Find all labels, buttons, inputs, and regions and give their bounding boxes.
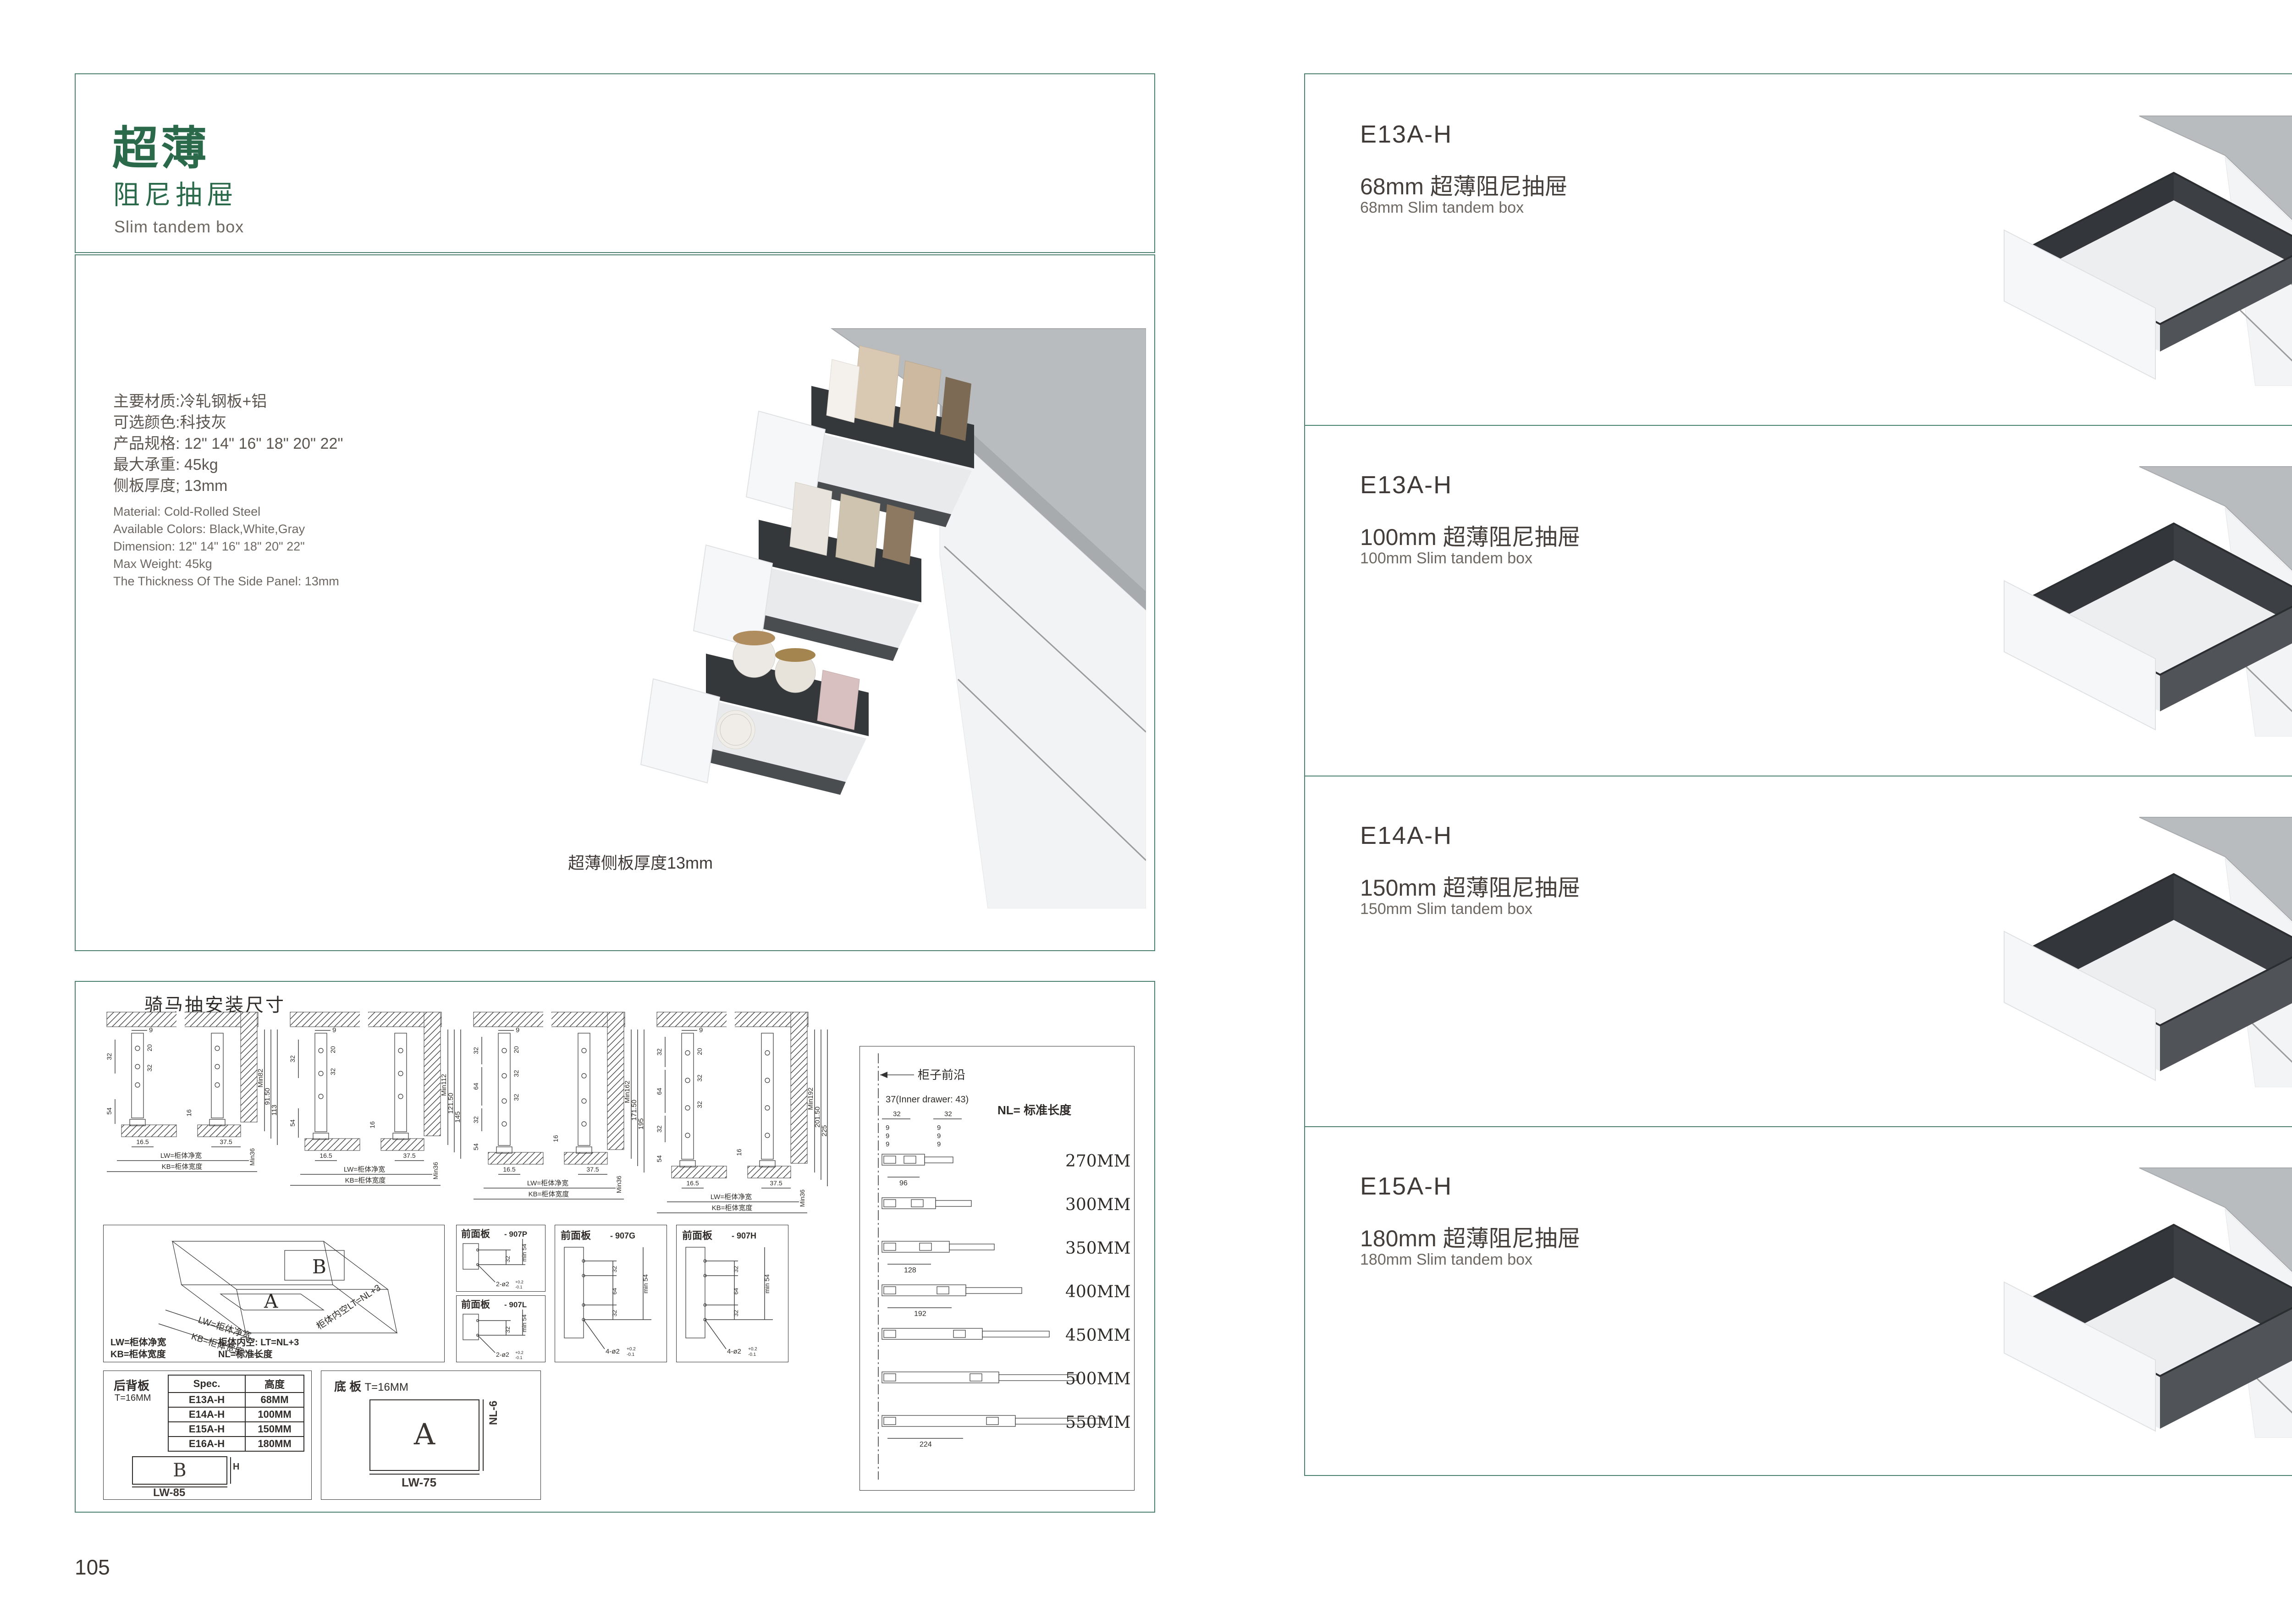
svg-text:Min36: Min36	[799, 1189, 806, 1207]
hero-photo-illustration	[539, 317, 1146, 908]
svg-text:32: 32	[472, 1047, 479, 1054]
svg-text:121.50: 121.50	[447, 1093, 455, 1114]
back-panel-label: 后背板	[114, 1376, 149, 1393]
svg-text:-0.1: -0.1	[748, 1352, 756, 1357]
svg-text:64: 64	[656, 1088, 663, 1095]
table-row: E14A-H100MM	[168, 1407, 304, 1422]
svg-text:54: 54	[472, 1143, 479, 1151]
bottom-panel-rect: A	[369, 1399, 479, 1471]
svg-text:Min112: Min112	[440, 1074, 448, 1096]
product-title-en: 180mm Slim tandem box	[1360, 1251, 1532, 1269]
svg-text:9: 9	[699, 1026, 703, 1034]
table-row: E15A-H150MM	[168, 1422, 304, 1437]
svg-text:KB=柜体宽度: KB=柜体宽度	[712, 1204, 753, 1212]
cross-section-2: 9 20 32 32 54 16 Min112 121.50 145 16.5 …	[286, 1009, 465, 1190]
svg-text:4-ø2: 4-ø2	[727, 1348, 741, 1355]
spec-en-line: Material: Cold-Rolled Steel	[113, 503, 339, 520]
svg-text:32: 32	[656, 1048, 663, 1056]
product-row-4: E15A-H 180mm 超薄阻尼抽屉 180mm Slim tandem bo…	[1305, 1126, 2292, 1477]
svg-text:+0.2: +0.2	[515, 1350, 523, 1355]
svg-text:16: 16	[369, 1121, 376, 1129]
photo-caption: 超薄侧板厚度13mm	[568, 850, 713, 874]
svg-text:32: 32	[944, 1110, 952, 1118]
svg-text:128: 128	[904, 1266, 916, 1274]
table-row: E16A-H180MM	[168, 1437, 304, 1451]
spec-en-line: Dimension: 12" 14" 16" 18" 20" 22"	[113, 538, 339, 555]
cross-section-3: 9 20 32 32 32 64 32 54 16 Min162 171.50 …	[470, 1009, 649, 1204]
svg-text:54: 54	[289, 1119, 296, 1127]
front-panel-907l: 前面板 - 907L 32 min 54 2-ø2 +0.2 -0.1	[456, 1295, 545, 1362]
svg-text:270MM: 270MM	[1065, 1152, 1130, 1171]
product-title-en: 68mm Slim tandem box	[1360, 199, 1524, 217]
panel-letter-b: B	[312, 1255, 326, 1278]
svg-text:Min36: Min36	[432, 1162, 439, 1179]
cross-section-4: 9 20 32 32 32 64 32 54 16 Min192 201.50 …	[653, 1009, 832, 1218]
svg-text:16: 16	[185, 1109, 193, 1117]
product-photo-2	[1908, 464, 2292, 737]
svg-text:+0.2: +0.2	[748, 1347, 757, 1352]
bottom-panel-diagram: 底 板 T=16MM A NL-6 LW-75	[321, 1371, 541, 1500]
svg-text:37.5: 37.5	[586, 1166, 599, 1173]
panel-code: - 907L	[504, 1300, 527, 1309]
svg-text:16: 16	[735, 1149, 743, 1156]
svg-text:225: 225	[821, 1125, 828, 1136]
spec-table-header: 高度	[245, 1375, 304, 1393]
svg-text:32: 32	[611, 1266, 618, 1272]
svg-text:4-ø2: 4-ø2	[606, 1348, 620, 1355]
svg-text:37.5: 37.5	[220, 1138, 232, 1145]
svg-text:500MM: 500MM	[1065, 1370, 1130, 1388]
svg-text:32: 32	[656, 1125, 663, 1133]
svg-text:32: 32	[472, 1116, 479, 1123]
product-code: E14A-H	[1360, 821, 1452, 850]
specs-cn: 主要材质:冷轧钢板+铝 可选颜色:科技灰 产品规格: 12" 14" 16" 1…	[113, 391, 343, 496]
svg-text:9: 9	[149, 1026, 153, 1034]
rail-spacing-dims: 96 128 192 224	[887, 1177, 963, 1448]
svg-text:LW=柜体净宽: LW=柜体净宽	[344, 1166, 385, 1173]
svg-text:54: 54	[656, 1155, 663, 1162]
spec-en-line: Max Weight: 45kg	[113, 555, 339, 573]
svg-text:64: 64	[611, 1288, 618, 1294]
svg-text:32: 32	[512, 1094, 520, 1101]
product-title-cn: 150mm 超薄阻尼抽屉	[1360, 870, 1581, 903]
svg-text:32: 32	[504, 1256, 511, 1262]
svg-text:9: 9	[886, 1132, 889, 1140]
page-subtitle-cn: 阻尼抽屉	[113, 173, 238, 212]
hero-photo	[539, 317, 1146, 908]
svg-text:LW=柜体净宽: LW=柜体净宽	[711, 1193, 752, 1201]
product-photo-1	[1908, 113, 2292, 386]
svg-text:32: 32	[893, 1110, 901, 1118]
nl-label: NL= 标准长度	[997, 1103, 1071, 1117]
panel-title: 前面板	[682, 1230, 713, 1241]
svg-text:-0.1: -0.1	[515, 1355, 523, 1360]
dim-lw75: LW-75	[402, 1475, 436, 1490]
svg-text:91.50: 91.50	[264, 1088, 271, 1105]
product-title-cn: 100mm 超薄阻尼抽屉	[1360, 519, 1581, 552]
svg-text:LW=柜体净宽: LW=柜体净宽	[160, 1152, 202, 1160]
svg-text:20: 20	[329, 1046, 336, 1053]
svg-text:+0.2: +0.2	[515, 1280, 523, 1284]
svg-text:96: 96	[899, 1179, 908, 1187]
svg-text:9: 9	[886, 1140, 889, 1148]
svg-text:9: 9	[886, 1124, 889, 1132]
product-title-en: 150mm Slim tandem box	[1360, 900, 1532, 918]
svg-text:37.5: 37.5	[770, 1179, 782, 1187]
panel-code: - 907P	[504, 1230, 527, 1239]
cross-section-1: 9 20 32 32 54 16 Min82 91.50 113 16.5 37…	[103, 1009, 282, 1177]
svg-text:350MM: 350MM	[1065, 1239, 1130, 1258]
svg-text:201.50: 201.50	[814, 1107, 821, 1128]
svg-text:32: 32	[611, 1310, 618, 1316]
front-panel-907p: 前面板 - 907P 32 min 54 2-ø2 +0.2 -0.1	[456, 1225, 545, 1292]
svg-text:113: 113	[270, 1105, 278, 1116]
svg-text:9: 9	[937, 1140, 941, 1148]
spec-cn-line: 最大承重: 45kg	[113, 454, 343, 475]
page-subtitle-en: Slim tandem box	[114, 217, 244, 237]
svg-text:450MM: 450MM	[1065, 1326, 1130, 1345]
panel-title: 前面板	[561, 1230, 591, 1241]
svg-text:9: 9	[937, 1124, 941, 1132]
bottom-panel-label: 底 板	[334, 1380, 361, 1393]
svg-text:9: 9	[937, 1132, 941, 1140]
svg-text:min 54: min 54	[521, 1314, 528, 1332]
svg-text:9: 9	[332, 1026, 336, 1034]
spec-table: Spec. 高度 E13A-H68MM E14A-H100MM E15A-H15…	[168, 1375, 304, 1452]
spec-cn-line: 主要材质:冷轧钢板+铝	[113, 391, 343, 412]
svg-text:37.5: 37.5	[403, 1152, 415, 1159]
svg-text:32: 32	[733, 1266, 739, 1272]
dim-nl6: NL-6	[487, 1401, 500, 1425]
back-panel-thickness: T=16MM	[115, 1393, 151, 1404]
dim-lw85: LW-85	[153, 1486, 185, 1499]
top-dim-cluster: 32 9 9 9 32 9 9 9	[882, 1110, 962, 1148]
back-panel-rect: B	[132, 1456, 227, 1485]
product-photo-4	[1908, 1165, 2292, 1438]
svg-text:145: 145	[454, 1111, 462, 1123]
svg-text:-0.1: -0.1	[627, 1352, 635, 1357]
svg-text:NL=标准长度: NL=标准长度	[218, 1349, 273, 1360]
left-header-box: 超薄 阻尼抽屉 Slim tandem box	[75, 73, 1155, 253]
svg-text:KB=柜体宽度: KB=柜体宽度	[110, 1349, 166, 1360]
box3d-diagram: B A LW=柜体净宽 KB=柜体宽度 柜体内空LT=NL+3 LW=柜体净宽 …	[103, 1225, 445, 1362]
svg-text:300MM: 300MM	[1065, 1195, 1130, 1214]
spec-en-line: Available Colors: Black,White,Gray	[113, 520, 339, 538]
svg-text:224: 224	[920, 1441, 932, 1448]
table-row: E13A-H68MM	[168, 1393, 304, 1407]
spec-table-header: Spec.	[168, 1375, 245, 1393]
svg-text:-0.1: -0.1	[515, 1285, 523, 1289]
svg-text:20: 20	[512, 1046, 520, 1053]
svg-text:54: 54	[105, 1107, 113, 1115]
product-code: E15A-H	[1360, 1172, 1452, 1200]
page-title: 超薄	[112, 111, 209, 177]
panel-title: 前面板	[461, 1299, 490, 1310]
left-tech-box: 骑马抽安装尺寸 9 20 32 32 54 16	[75, 981, 1155, 1513]
svg-text:32: 32	[289, 1055, 296, 1062]
svg-text:柜子前沿: 柜子前沿	[918, 1068, 965, 1082]
panel-letter-a: A	[264, 1290, 278, 1312]
svg-text:20: 20	[146, 1044, 153, 1051]
product-row-3: E14A-H 150mm 超薄阻尼抽屉 150mm Slim tandem bo…	[1305, 776, 2292, 1126]
front-edge-callout: 柜子前沿	[880, 1068, 965, 1082]
svg-text:KB=柜体宽度: KB=柜体宽度	[529, 1190, 569, 1198]
svg-text:min 54: min 54	[521, 1244, 528, 1261]
product-row-2: E13A-H 100mm 超薄阻尼抽屉 100mm Slim tandem bo…	[1305, 425, 2292, 776]
spec-en-line: The Thickness Of The Side Panel: 13mm	[113, 573, 339, 590]
spec-cn-line: 侧板厚度; 13mm	[113, 475, 343, 496]
svg-text:min 54: min 54	[642, 1274, 649, 1294]
svg-text:171.50: 171.50	[630, 1100, 638, 1121]
svg-text:16.5: 16.5	[136, 1138, 149, 1145]
svg-text:32: 32	[105, 1053, 113, 1060]
svg-text:KB=柜体宽度: KB=柜体宽度	[162, 1163, 203, 1171]
specs-en: Material: Cold-Rolled Steel Available Co…	[113, 503, 339, 590]
svg-text:32: 32	[696, 1101, 703, 1108]
right-products-box: E13A-H 68mm 超薄阻尼抽屉 68mm Slim tandem box …	[1304, 73, 2292, 1476]
svg-text:柜体内空LT=NL+3: 柜体内空LT=NL+3	[314, 1283, 382, 1332]
panel-code: - 907G	[610, 1231, 635, 1240]
svg-text:550MM: 550MM	[1065, 1413, 1130, 1432]
product-code: E13A-H	[1360, 471, 1452, 499]
svg-text:Min36: Min36	[615, 1176, 623, 1193]
panel-title: 前面板	[461, 1228, 490, 1239]
left-main-box: 主要材质:冷轧钢板+铝 可选颜色:科技灰 产品规格: 12" 14" 16" 1…	[75, 254, 1155, 951]
panel-code: - 907H	[732, 1231, 756, 1240]
svg-text:Min82: Min82	[257, 1069, 264, 1088]
svg-text:64: 64	[733, 1288, 739, 1294]
svg-text:2-ø2: 2-ø2	[496, 1280, 509, 1288]
rail-length-labels: 270MM 300MM 350MM 400MM 450MM 500MM 550M…	[1065, 1152, 1130, 1432]
catalog-spread: { "colors": {"accent_green":"#2a6a4b","b…	[0, 0, 2292, 1624]
svg-text:柜体内空: LT=NL+3: 柜体内空: LT=NL+3	[218, 1337, 299, 1348]
svg-text:32: 32	[504, 1327, 511, 1333]
spec-cn-line: 可选颜色:科技灰	[113, 412, 343, 433]
bottom-panel-thickness: T=16MM	[364, 1381, 408, 1393]
svg-text:9: 9	[516, 1026, 519, 1034]
product-row-1: E13A-H 68mm 超薄阻尼抽屉 68mm Slim tandem box	[1305, 74, 2292, 425]
svg-text:LW=柜体净宽: LW=柜体净宽	[110, 1337, 166, 1348]
product-code: E13A-H	[1360, 120, 1452, 149]
product-title-cn: 180mm 超薄阻尼抽屉	[1360, 1220, 1581, 1253]
svg-text:195: 195	[637, 1118, 645, 1129]
svg-text:32: 32	[329, 1068, 336, 1075]
svg-text:32: 32	[733, 1310, 739, 1316]
rail-lengths-diagram: 柜子前沿 37(Inner drawer: 43) NL= 标准长度 32 9 …	[859, 1046, 1135, 1491]
svg-text:Min36: Min36	[248, 1148, 256, 1166]
svg-text:16.5: 16.5	[686, 1179, 699, 1187]
svg-text:KB=柜体宽度: KB=柜体宽度	[345, 1177, 386, 1184]
svg-text:32: 32	[512, 1070, 520, 1077]
dim-h: H	[233, 1462, 239, 1472]
svg-text:192: 192	[914, 1310, 926, 1318]
svg-text:400MM: 400MM	[1065, 1283, 1130, 1301]
svg-text:32: 32	[146, 1064, 153, 1072]
front-panel-907h: 前面板 - 907H 32 64 32 min 54 4-ø2 +0.2 -0.…	[676, 1225, 788, 1362]
product-title-en: 100mm Slim tandem box	[1360, 550, 1532, 567]
svg-text:32: 32	[696, 1074, 703, 1082]
page-number-left: 105	[75, 1555, 110, 1580]
product-photo-3	[1908, 815, 2292, 1087]
svg-text:2-ø2: 2-ø2	[496, 1351, 509, 1358]
svg-text:min 54: min 54	[763, 1274, 771, 1294]
svg-text:64: 64	[472, 1083, 479, 1090]
svg-text:16.5: 16.5	[320, 1152, 332, 1159]
svg-text:LW=柜体净宽: LW=柜体净宽	[527, 1179, 568, 1187]
inner-note: 37(Inner drawer: 43)	[886, 1095, 969, 1105]
spec-cn-line: 产品规格: 12" 14" 16" 18" 20" 22"	[113, 433, 343, 454]
svg-text:20: 20	[696, 1048, 703, 1055]
front-panel-907g: 前面板 - 907G 32 64 32 min 54 4-ø2 +0.2 -0.…	[555, 1225, 667, 1362]
svg-text:16.5: 16.5	[503, 1166, 515, 1173]
svg-text:+0.2: +0.2	[627, 1347, 636, 1352]
product-title-cn: 68mm 超薄阻尼抽屉	[1360, 168, 1568, 201]
svg-text:16: 16	[552, 1135, 559, 1142]
back-panel-diagram: 后背板 T=16MM Spec. 高度 E13A-H68MM E14A-H100…	[103, 1371, 312, 1500]
